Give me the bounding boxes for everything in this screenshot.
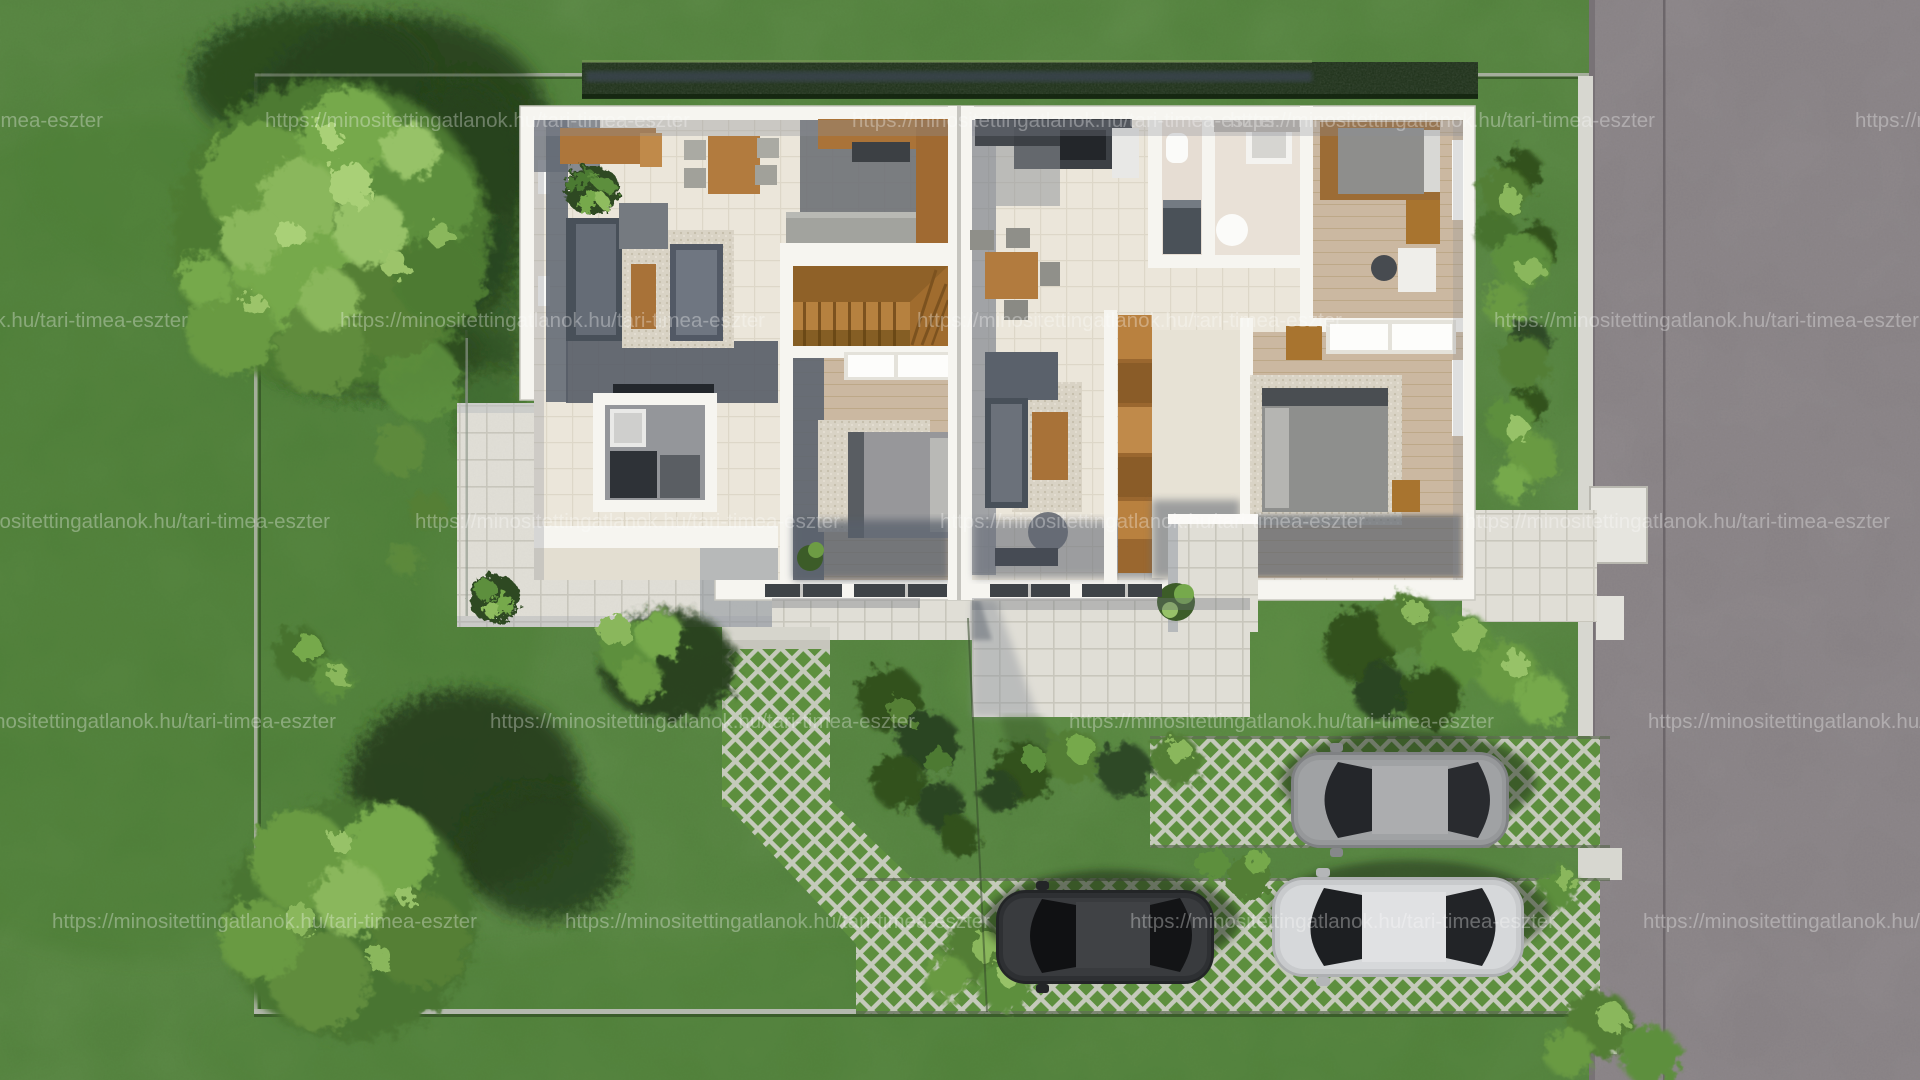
- svg-text:https://minositettingatlanok.h: https://minositettingatlanok.hu/tari-tim…: [1643, 910, 1920, 933]
- svg-text:https://minositettingatlanok.h: https://minositettingatlanok.hu/tari-tim…: [1130, 910, 1555, 933]
- svg-text:https://minositettingatlanok.h: https://minositettingatlanok.hu/tari-tim…: [0, 109, 103, 132]
- svg-text:https://minositettingatlanok.h: https://minositettingatlanok.hu/tari-tim…: [415, 510, 840, 533]
- svg-text:https://minositettingatlanok.h: https://minositettingatlanok.hu/tari-tim…: [1648, 710, 1920, 733]
- svg-text:https://minositettingatlanok.h: https://minositettingatlanok.hu/tari-tim…: [0, 710, 336, 733]
- svg-text:https://minositettingatlanok.h: https://minositettingatlanok.hu/tari-tim…: [490, 710, 915, 733]
- svg-text:https://minositettingatlanok.h: https://minositettingatlanok.hu/tari-tim…: [565, 910, 990, 933]
- svg-text:https://minositettingatlanok.h: https://minositettingatlanok.hu/tari-tim…: [0, 309, 188, 332]
- svg-text:https://minositettingatlanok.h: https://minositettingatlanok.hu/tari-tim…: [1230, 109, 1655, 132]
- svg-text:https://minositettingatlanok.h: https://minositettingatlanok.hu/tari-tim…: [52, 910, 477, 933]
- svg-text:https://minositettingatlanok.h: https://minositettingatlanok.hu/tari-tim…: [1069, 710, 1494, 733]
- svg-text:https://minositettingatlanok.h: https://minositettingatlanok.hu/tari-tim…: [852, 109, 1277, 132]
- svg-text:https://minositettingatlanok.h: https://minositettingatlanok.hu/tari-tim…: [1465, 510, 1890, 533]
- svg-text:https://minositettingatlanok.h: https://minositettingatlanok.hu/tari-tim…: [940, 510, 1365, 533]
- svg-text:https://minositettingatlanok.h: https://minositettingatlanok.hu/tari-tim…: [0, 510, 330, 533]
- svg-text:https://minositettingatlanok.h: https://minositettingatlanok.hu/tari-tim…: [1494, 309, 1919, 332]
- svg-text:https://minositettingatlanok.h: https://minositettingatlanok.hu/tari-tim…: [917, 309, 1342, 332]
- svg-text:https://minositettingatlanok.h: https://minositettingatlanok.hu/tari-tim…: [340, 309, 765, 332]
- svg-text:https://minositettingatlanok.h: https://minositettingatlanok.hu/tari-tim…: [1855, 109, 1920, 132]
- svg-text:https://minositettingatlanok.h: https://minositettingatlanok.hu/tari-tim…: [265, 109, 690, 132]
